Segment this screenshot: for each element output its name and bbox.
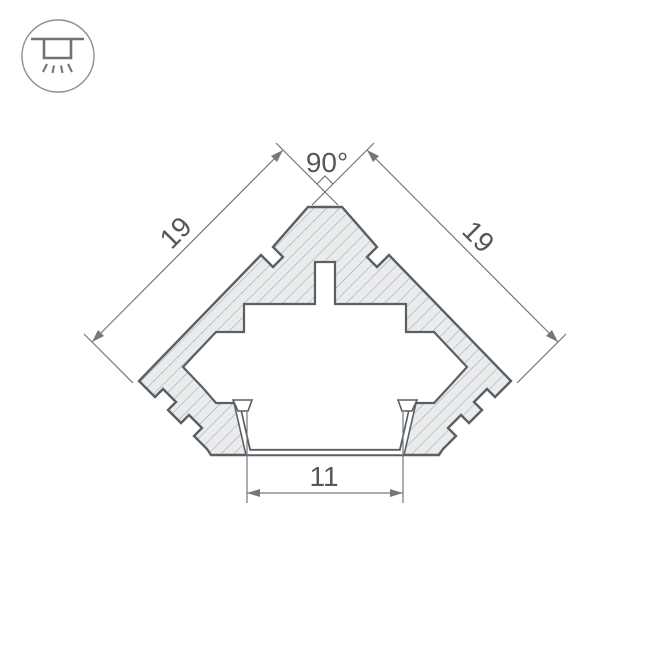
profile-cross-section <box>139 207 511 455</box>
category-badge <box>22 20 94 92</box>
badge-circle <box>22 20 94 92</box>
left-side-dimension-label: 19 <box>154 211 198 255</box>
right-side-dimension-label: 19 <box>456 215 500 259</box>
angle-dimension-label: 90° <box>306 147 348 178</box>
drawing-canvas: 90° 19 19 11 <box>0 0 650 650</box>
dimension-angle: 90° <box>276 143 374 205</box>
recessed-light-icon <box>31 39 84 73</box>
opening-width-dimension-label: 11 <box>309 461 338 492</box>
